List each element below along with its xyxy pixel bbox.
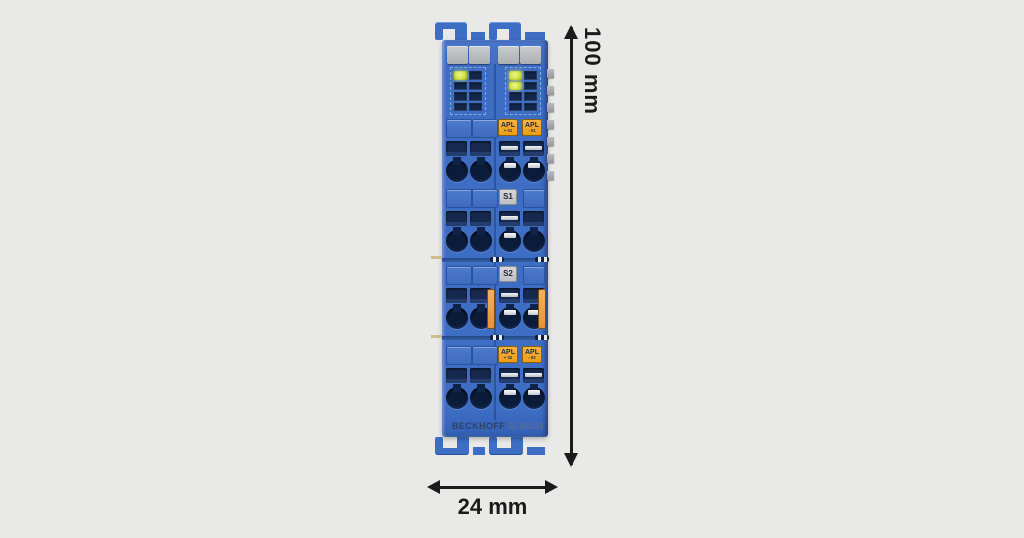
- wire-hole-row: [442, 160, 548, 184]
- orange-release-strip: [538, 289, 546, 329]
- blank-label: [446, 346, 472, 365]
- wire-hole: [499, 307, 521, 329]
- segment-seam: [442, 336, 548, 340]
- terminal-slot: [470, 211, 491, 226]
- hook-lip: [435, 28, 443, 40]
- terminal-slot: [470, 368, 491, 383]
- foot-lip: [435, 437, 443, 449]
- foot-stem: [457, 437, 469, 449]
- led-indicator-off: [454, 82, 467, 91]
- terminal-housing: APL + 01 APL - 01 S: [442, 40, 548, 437]
- led-indicator-on: [509, 82, 522, 91]
- led-indicator-off: [469, 92, 482, 101]
- s1-label: S1: [499, 189, 517, 205]
- led-indicator-on: [454, 71, 467, 80]
- foot-bar: [435, 448, 469, 455]
- seam-link: [535, 335, 549, 340]
- blank-label: [472, 266, 498, 285]
- apl-label-minus-01: APL - 01: [522, 119, 542, 136]
- side-contact-tab: [547, 86, 554, 95]
- apl-label-sub: - 02: [524, 356, 539, 360]
- blank-label: [446, 266, 472, 285]
- wire-hole: [446, 230, 468, 252]
- blank-label: [472, 189, 498, 208]
- apl-label-sub: - 01: [524, 129, 539, 133]
- seam-link: [490, 335, 504, 340]
- bottom-tab: [527, 447, 545, 455]
- top-connector-pad: [520, 46, 541, 64]
- blank-label: [523, 189, 545, 208]
- wire-hole: [446, 387, 468, 409]
- wire-hole: [446, 307, 468, 329]
- blank-label: [446, 189, 472, 208]
- blank-label: [472, 119, 498, 138]
- brand-name: BECKHOFF: [452, 421, 505, 431]
- side-contact-pin: [431, 256, 442, 259]
- apl-label-plus-02: APL + 02: [498, 346, 518, 363]
- wire-hole: [470, 230, 492, 252]
- seam-link: [535, 257, 549, 262]
- top-connector-pad: [469, 46, 490, 64]
- led-indicator-off: [469, 82, 482, 91]
- wire-hole: [470, 387, 492, 409]
- wire-hole: [499, 387, 521, 409]
- led-indicator-off: [454, 92, 467, 101]
- apl-label-sub: + 02: [500, 356, 515, 360]
- wire-hole: [523, 230, 545, 252]
- led-indicator-off: [524, 82, 537, 91]
- led-panel-left: [450, 67, 486, 115]
- s2-label: S2: [499, 266, 517, 282]
- wire-hole-row: [442, 387, 548, 411]
- terminal-slot: [446, 368, 467, 383]
- side-contact-tab: [547, 154, 554, 163]
- apl-label-plus-01: APL + 01: [498, 119, 518, 136]
- elx6233-terminal-module: APL + 01 APL - 01 S: [433, 22, 563, 474]
- led-indicator-off: [524, 103, 537, 112]
- terminal-slot: [499, 141, 520, 156]
- terminal-slot-row: [442, 368, 548, 384]
- wire-hole: [499, 160, 521, 182]
- width-dimension-arrow: [440, 486, 545, 489]
- apl-label-sub: + 01: [500, 129, 515, 133]
- wire-hole: [499, 230, 521, 252]
- terminal-slot: [499, 288, 520, 303]
- wire-hole: [523, 387, 545, 409]
- terminal-slot: [446, 288, 467, 303]
- side-contact-tab: [547, 103, 554, 112]
- terminal-slot-row: [442, 211, 548, 227]
- bottom-mounting-hook: [489, 437, 523, 455]
- blank-label: [472, 346, 498, 365]
- wire-hole-row: [442, 230, 548, 254]
- blank-label: [523, 266, 545, 285]
- led-indicator-off: [509, 103, 522, 112]
- led-indicator-on: [509, 71, 522, 80]
- hook-stem: [455, 28, 467, 40]
- led-indicator-off: [524, 92, 537, 101]
- led-indicator-off: [469, 103, 482, 112]
- terminal-slot: [523, 141, 544, 156]
- blank-label: [446, 119, 472, 138]
- top-mounting-hook: [489, 22, 521, 40]
- led-indicator-off: [454, 103, 467, 112]
- terminal-slot: [446, 141, 467, 156]
- terminal-slot: [446, 211, 467, 226]
- wire-hole-row: [442, 307, 548, 331]
- seam-link: [490, 257, 504, 262]
- terminal-slot: [470, 141, 491, 156]
- top-tab: [525, 32, 545, 40]
- hook-lip: [489, 28, 497, 40]
- hook-stem: [509, 28, 521, 40]
- terminal-slot-row: [442, 141, 548, 157]
- bottom-tab: [473, 447, 485, 455]
- side-contact-tab: [547, 137, 554, 146]
- top-mounting-hook: [435, 22, 467, 40]
- terminal-slot-row: [442, 288, 548, 304]
- height-dimension-arrow: [570, 27, 573, 465]
- terminal-slot: [499, 211, 520, 226]
- foot-bar: [489, 448, 523, 455]
- height-dimension-label: 100 mm: [579, 27, 605, 465]
- wire-hole: [446, 160, 468, 182]
- wire-hole: [523, 160, 545, 182]
- led-indicator-off: [509, 92, 522, 101]
- foot-lip: [489, 437, 497, 449]
- terminal-slot: [499, 368, 520, 383]
- wire-hole: [470, 160, 492, 182]
- top-connector-pad: [447, 46, 468, 64]
- segment-seam: [442, 258, 548, 262]
- side-contact-pin: [431, 335, 442, 338]
- side-contact-tab: [547, 69, 554, 78]
- led-panel-right: [505, 67, 541, 115]
- model-number: ELX6233: [508, 421, 543, 431]
- led-indicator-off: [524, 71, 537, 80]
- side-contact-tab: [547, 171, 554, 180]
- top-tab: [471, 32, 485, 40]
- terminal-slot: [523, 211, 544, 226]
- led-indicator-off: [469, 71, 482, 80]
- side-contact-tab: [547, 120, 554, 129]
- foot-stem: [511, 437, 523, 449]
- width-dimension-label: 24 mm: [430, 494, 555, 520]
- terminal-slot: [523, 368, 544, 383]
- top-connector-pad: [498, 46, 519, 64]
- apl-label-minus-02: APL - 02: [522, 346, 542, 363]
- bottom-mounting-hook: [435, 437, 469, 455]
- product-dimension-diagram: APL + 01 APL - 01 S: [0, 0, 1024, 538]
- orange-release-strip: [487, 289, 495, 329]
